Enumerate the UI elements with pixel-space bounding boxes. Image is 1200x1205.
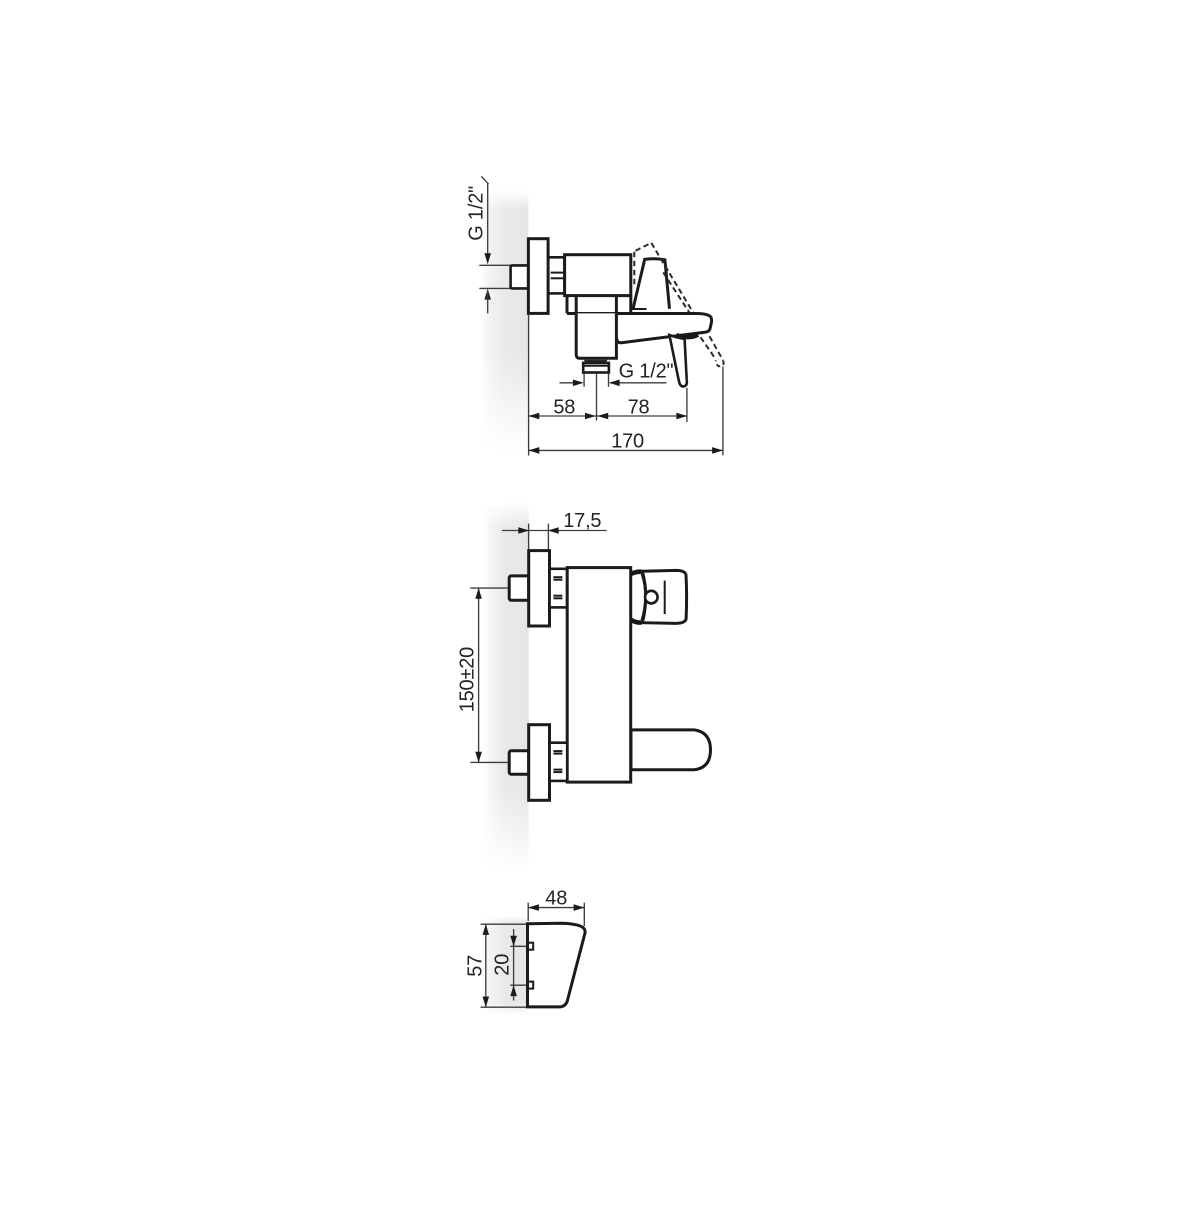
svg-text:G 1/2": G 1/2" (465, 186, 487, 241)
svg-text:150±20: 150±20 (456, 647, 478, 712)
svg-text:170: 170 (611, 430, 644, 452)
svg-text:20: 20 (492, 954, 514, 976)
svg-text:58: 58 (553, 397, 575, 419)
svg-text:57: 57 (464, 955, 486, 977)
svg-text:78: 78 (628, 397, 650, 419)
svg-text:G 1/2": G 1/2" (619, 361, 674, 383)
svg-text:48: 48 (545, 888, 567, 910)
svg-text:17,5: 17,5 (563, 510, 601, 532)
